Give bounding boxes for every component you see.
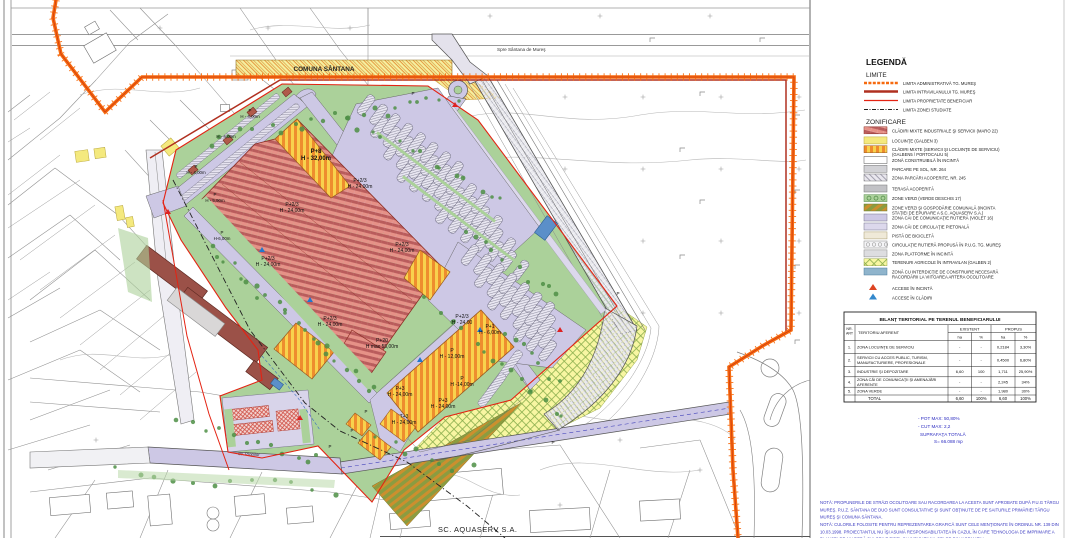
svg-text:EXISTENT: EXISTENT <box>960 327 980 332</box>
svg-text:100: 100 <box>978 369 985 374</box>
svg-text:S= 66.088 mp: S= 66.088 mp <box>934 439 963 444</box>
svg-text:PISTĂ DE BICICLETĂ: PISTĂ DE BICICLETĂ <box>892 233 934 238</box>
svg-text:3.: 3. <box>848 369 851 374</box>
svg-text:LIMITA PROPRIETATE BENEFICIAR: LIMITA PROPRIETATE BENEFICIAR <box>903 99 972 104</box>
svg-text:MUREŞ ŞI COMUNA SÂNTANA.: MUREŞ ŞI COMUNA SÂNTANA. <box>820 515 883 520</box>
svg-text:6,60: 6,60 <box>999 396 1008 401</box>
svg-text:ACCESE ÎN CLĂDIRI: ACCESE ÎN CLĂDIRI <box>892 296 932 301</box>
svg-text:ZONA PARCĂRI ACOPERITE, NR. 24: ZONA PARCĂRI ACOPERITE, NR. 245 <box>892 176 966 181</box>
svg-text:25,90%: 25,90% <box>1019 369 1033 374</box>
svg-text:P+8: P+8 <box>311 149 323 155</box>
svg-text:LIMITA INTRAVILANULUI TG. MURE: LIMITA INTRAVILANULUI TG. MUREŞ <box>903 90 976 95</box>
svg-text:ZONE VERZI (VERDE DESCHIS 17): ZONE VERZI (VERDE DESCHIS 17) <box>892 196 962 201</box>
svg-text:NOTĂ: CULORILE FOLOSITE PENTRU: NOTĂ: CULORILE FOLOSITE PENTRU REPREZENT… <box>820 522 1059 527</box>
svg-text:ZONĂ CONSTRUIBILĂ ÎN INCINTĂ: ZONĂ CONSTRUIBILĂ ÎN INCINTĂ <box>892 158 959 163</box>
svg-text:TOTAL: TOTAL <box>868 396 882 401</box>
svg-text:6,60: 6,60 <box>956 396 965 401</box>
svg-text:P: P <box>351 428 354 433</box>
svg-text:ZONIFICARE: ZONIFICARE <box>866 119 907 126</box>
svg-text:H - 24,00m: H - 24,00m <box>280 208 305 214</box>
svg-text:ZONA VERDE: ZONA VERDE <box>857 389 882 394</box>
svg-text:2.: 2. <box>848 357 851 362</box>
svg-text:1,980: 1,980 <box>998 389 1009 394</box>
svg-text:H - 24,00: H - 24,00 <box>452 320 473 326</box>
svg-text:H - 4,00m: H - 4,00m <box>216 134 236 139</box>
svg-text:H - 24,00m: H - 24,00m <box>256 262 281 268</box>
svg-text:SC. AQUASERV S.A.: SC. AQUASERV S.A. <box>438 525 517 534</box>
svg-text:6,60: 6,60 <box>956 369 965 374</box>
svg-text:H - 6,00m: H - 6,00m <box>479 330 501 336</box>
svg-text:P: P <box>249 108 252 113</box>
svg-text:AFERENTE: AFERENTE <box>857 382 878 387</box>
svg-text:LEGENDĂ: LEGENDĂ <box>866 57 907 67</box>
svg-text:TERITORIU AFERENT: TERITORIU AFERENT <box>858 330 900 335</box>
svg-text:H - 4,00m: H - 4,00m <box>186 170 206 175</box>
svg-text:0,2184: 0,2184 <box>997 344 1010 349</box>
svg-text:H - 24,00m: H - 24,00m <box>318 322 343 328</box>
svg-text:H - 12,00m: H - 12,00m <box>440 354 465 360</box>
svg-text:SUPRAFAŢA TOTALĂ: SUPRAFAŢA TOTALĂ <box>920 431 967 437</box>
svg-text:ha: ha <box>1001 335 1006 340</box>
svg-text:H - 24,00m: H - 24,00m <box>390 248 415 254</box>
svg-text:PARCARE PE SOL, NR. 264: PARCARE PE SOL, NR. 264 <box>892 167 947 172</box>
svg-text:4.: 4. <box>848 380 851 385</box>
svg-text:100%: 100% <box>976 396 987 401</box>
svg-text:INDUSTRIE ŞI DEPOZITARE: INDUSTRIE ŞI DEPOZITARE <box>857 369 909 374</box>
svg-text:%: % <box>979 335 983 340</box>
svg-text:BILANŢ TERITORIAL PE TERENUL B: BILANŢ TERITORIAL PE TERENUL BENEFICIARU… <box>880 317 1002 323</box>
svg-text:1,711: 1,711 <box>998 369 1008 374</box>
svg-text:TERENURI AGRICOLE ÎN INTRAVILA: TERENURI AGRICOLE ÎN INTRAVILAN (GALBEN … <box>892 260 992 265</box>
svg-text:NOTĂ: PROPUNERILE DE STRĂZI OC: NOTĂ: PROPUNERILE DE STRĂZI OCOLITOARE S… <box>820 500 1059 505</box>
svg-text:P: P <box>195 164 198 169</box>
svg-text:P: P <box>329 444 332 449</box>
svg-text:P: P <box>365 409 368 414</box>
svg-text:ZONA CĂI DE COMUNICAŢIE RUTIER: ZONA CĂI DE COMUNICAŢIE RUTIERĂ (VIOLET … <box>892 216 994 221</box>
svg-text:2,245: 2,245 <box>998 380 1009 385</box>
svg-text:- CUT MAX: 2,2: - CUT MAX: 2,2 <box>918 424 951 429</box>
svg-text:CIRCULAŢIE RUTIERĂ PROPUSĂ ÎN: CIRCULAŢIE RUTIERĂ PROPUSĂ ÎN P.U.G. TG.… <box>892 243 1001 248</box>
svg-text:PROPUS: PROPUS <box>1005 327 1022 332</box>
svg-text:1.: 1. <box>848 344 851 349</box>
svg-text:P: P <box>411 91 414 96</box>
svg-text:MUREŞ. P.U.Z. SÂNTANA DE D: MUREŞ. P.U.Z. SÂNTANA DE DUO SUNT CONSUL… <box>820 507 1050 512</box>
svg-text:TERASĂ ACOPERITĂ: TERASĂ ACOPERITĂ <box>892 187 934 192</box>
svg-text:5.: 5. <box>848 389 851 394</box>
svg-text:ha: ha <box>957 335 962 340</box>
svg-text:P: P <box>214 192 217 197</box>
svg-text:MANUFACTURIERE, PROFESIONALE: MANUFACTURIERE, PROFESIONALE <box>857 360 926 365</box>
svg-text:H - 24,00m: H - 24,00m <box>392 420 417 426</box>
svg-text:Spre Sântana de Mureş: Spre Sântana de Mureş <box>497 47 546 52</box>
svg-text:3,30%: 3,30% <box>1020 344 1032 349</box>
svg-text:30%: 30% <box>1021 389 1029 394</box>
svg-text:0,4500: 0,4500 <box>997 357 1010 362</box>
svg-text:- POT MAX: 50,80%: - POT MAX: 50,80% <box>918 416 960 421</box>
svg-text:COMUNA SÂNTANA: COMUNA SÂNTANA <box>293 64 354 73</box>
svg-text:6,80%: 6,80% <box>1020 357 1032 362</box>
svg-text:H - 32,00m: H - 32,00m <box>301 156 331 162</box>
svg-text:H - 24,00m: H - 24,00m <box>431 404 456 410</box>
svg-text:%: % <box>1024 335 1028 340</box>
svg-text:H - 24,00m: H - 24,00m <box>348 184 373 190</box>
svg-text:LIMITA ADMINISTRATIVĂ TG. MURE: LIMITA ADMINISTRATIVĂ TG. MUREŞ <box>903 81 976 86</box>
svg-text:ZONA PLATFORME ÎN INCINTĂ: ZONA PLATFORME ÎN INCINTĂ <box>892 251 953 256</box>
svg-text:ZONA CĂI DE CIRCULAŢIE PIETONA: ZONA CĂI DE CIRCULAŢIE PIETONALĂ <box>892 225 969 230</box>
svg-text:LIMITA ZONEI STUDIATE: LIMITA ZONEI STUDIATE <box>903 108 952 113</box>
svg-text:H - 5,90m: H - 5,90m <box>205 198 225 203</box>
svg-text:H - 4,00m: H - 4,00m <box>240 114 260 119</box>
svg-text:100%: 100% <box>1020 396 1031 401</box>
svg-text:RACORDĂRII LA VIITOAREA ARTERA: RACORDĂRII LA VIITOAREA ARTERA OCOLITOAR… <box>892 275 994 280</box>
svg-text:ZONA LOCUINŢE DE SERVICIU: ZONA LOCUINŢE DE SERVICIU <box>857 344 914 349</box>
svg-text:H-6,00m: H-6,00m <box>214 236 231 241</box>
svg-text:CLĂDIRI MIXTE INDUSTRIALE ŞI: CLĂDIRI MIXTE INDUSTRIALE ŞI SERVICII (M… <box>892 128 998 133</box>
svg-text:(GALBEN5 / PORTOCALIU 5): (GALBEN5 / PORTOCALIU 5) <box>892 152 949 157</box>
svg-text:P: P <box>551 440 554 445</box>
svg-text:LIMITE: LIMITE <box>866 72 887 79</box>
svg-text:H -14,00m: H -14,00m <box>450 382 473 388</box>
svg-text:LOCUINŢE (GALBEN 3): LOCUINŢE (GALBEN 3) <box>892 138 938 143</box>
svg-text:ART: ART <box>846 332 854 336</box>
svg-text:P: P <box>221 230 224 235</box>
svg-text:NR.: NR. <box>846 327 852 331</box>
svg-text:P: P <box>616 291 619 296</box>
svg-text:34%: 34% <box>1021 380 1029 385</box>
svg-text:ACCESE ÎN INCINTĂ: ACCESE ÎN INCINTĂ <box>892 286 933 291</box>
svg-text:10.03.1998. PROIECTANTUL NU ÎŞ: 10.03.1998. PROIECTANTUL NU ÎŞI ASUMĂ RE… <box>820 529 1055 534</box>
svg-text:H max 55,00m: H max 55,00m <box>366 344 399 350</box>
svg-text:H - 24,00m: H - 24,00m <box>388 392 413 398</box>
